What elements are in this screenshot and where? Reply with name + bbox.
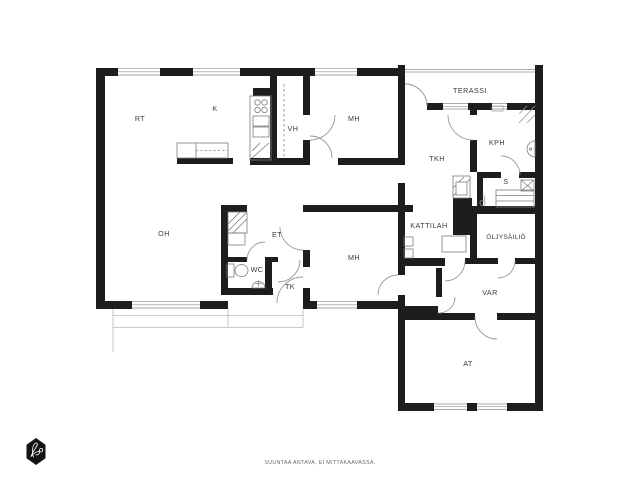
room-label-oh: OH <box>158 229 170 238</box>
door-tkh-kph <box>448 115 473 140</box>
patio-lines <box>113 309 303 352</box>
room-label-at: AT <box>463 359 473 368</box>
disclaimer-text: SUUNTAA ANTAVA, EI MITTAKAAVASSA. <box>264 460 375 466</box>
water-heater <box>453 176 470 198</box>
floor-plan-page: RT K VH MH TERASSI TKH KPH S OH ET WC TK… <box>0 0 640 480</box>
wc-toilet <box>227 264 248 277</box>
kitchen-island <box>177 143 228 158</box>
door-et-mh-bottom <box>280 227 303 250</box>
room-label-terassi: TERASSI <box>453 86 487 95</box>
door-kattilah-var <box>445 261 465 281</box>
room-label-k: K <box>212 104 217 113</box>
sauna-benches <box>496 190 534 207</box>
room-label-mh-top: MH <box>348 114 360 123</box>
room-label-var: VAR <box>482 288 498 297</box>
wc-sink <box>252 281 265 289</box>
bo-logo <box>27 438 46 465</box>
room-label-s: S <box>503 177 508 186</box>
room-label-tk: TK <box>285 282 295 291</box>
door-et-tk <box>278 260 300 282</box>
walls <box>96 65 543 411</box>
room-label-rt: RT <box>135 114 146 123</box>
kph-sink <box>527 141 535 157</box>
door-oljysailio-var <box>498 261 515 278</box>
sauna-stove <box>521 180 534 191</box>
boiler-equipment <box>404 236 466 258</box>
door-terrace-tkh <box>405 84 427 106</box>
logo-hexagon <box>27 438 46 465</box>
door-kph-sauna <box>501 156 520 175</box>
room-label-vh: VH <box>288 124 299 133</box>
room-label-oljysailio: ÖLJYSÄILIÖ <box>486 233 526 241</box>
room-label-kattilah: KATTILAH <box>410 221 447 230</box>
door-var-at <box>475 317 497 339</box>
room-label-et: ET <box>272 230 282 239</box>
room-label-wc: WC <box>251 265 264 274</box>
room-label-tkh: TKH <box>429 154 445 163</box>
floor-plan-svg: RT K VH MH TERASSI TKH KPH S OH ET WC TK… <box>0 0 640 480</box>
door-vestibule-var <box>439 297 455 313</box>
room-label-kph: KPH <box>489 138 505 147</box>
door-wc <box>247 242 265 260</box>
door-mh-vestibule <box>378 275 398 295</box>
door-hall-mh-top <box>310 136 332 158</box>
et-wardrobe <box>228 212 247 245</box>
kitchen-counter <box>250 96 271 160</box>
room-label-mh-bottom: MH <box>348 253 360 262</box>
